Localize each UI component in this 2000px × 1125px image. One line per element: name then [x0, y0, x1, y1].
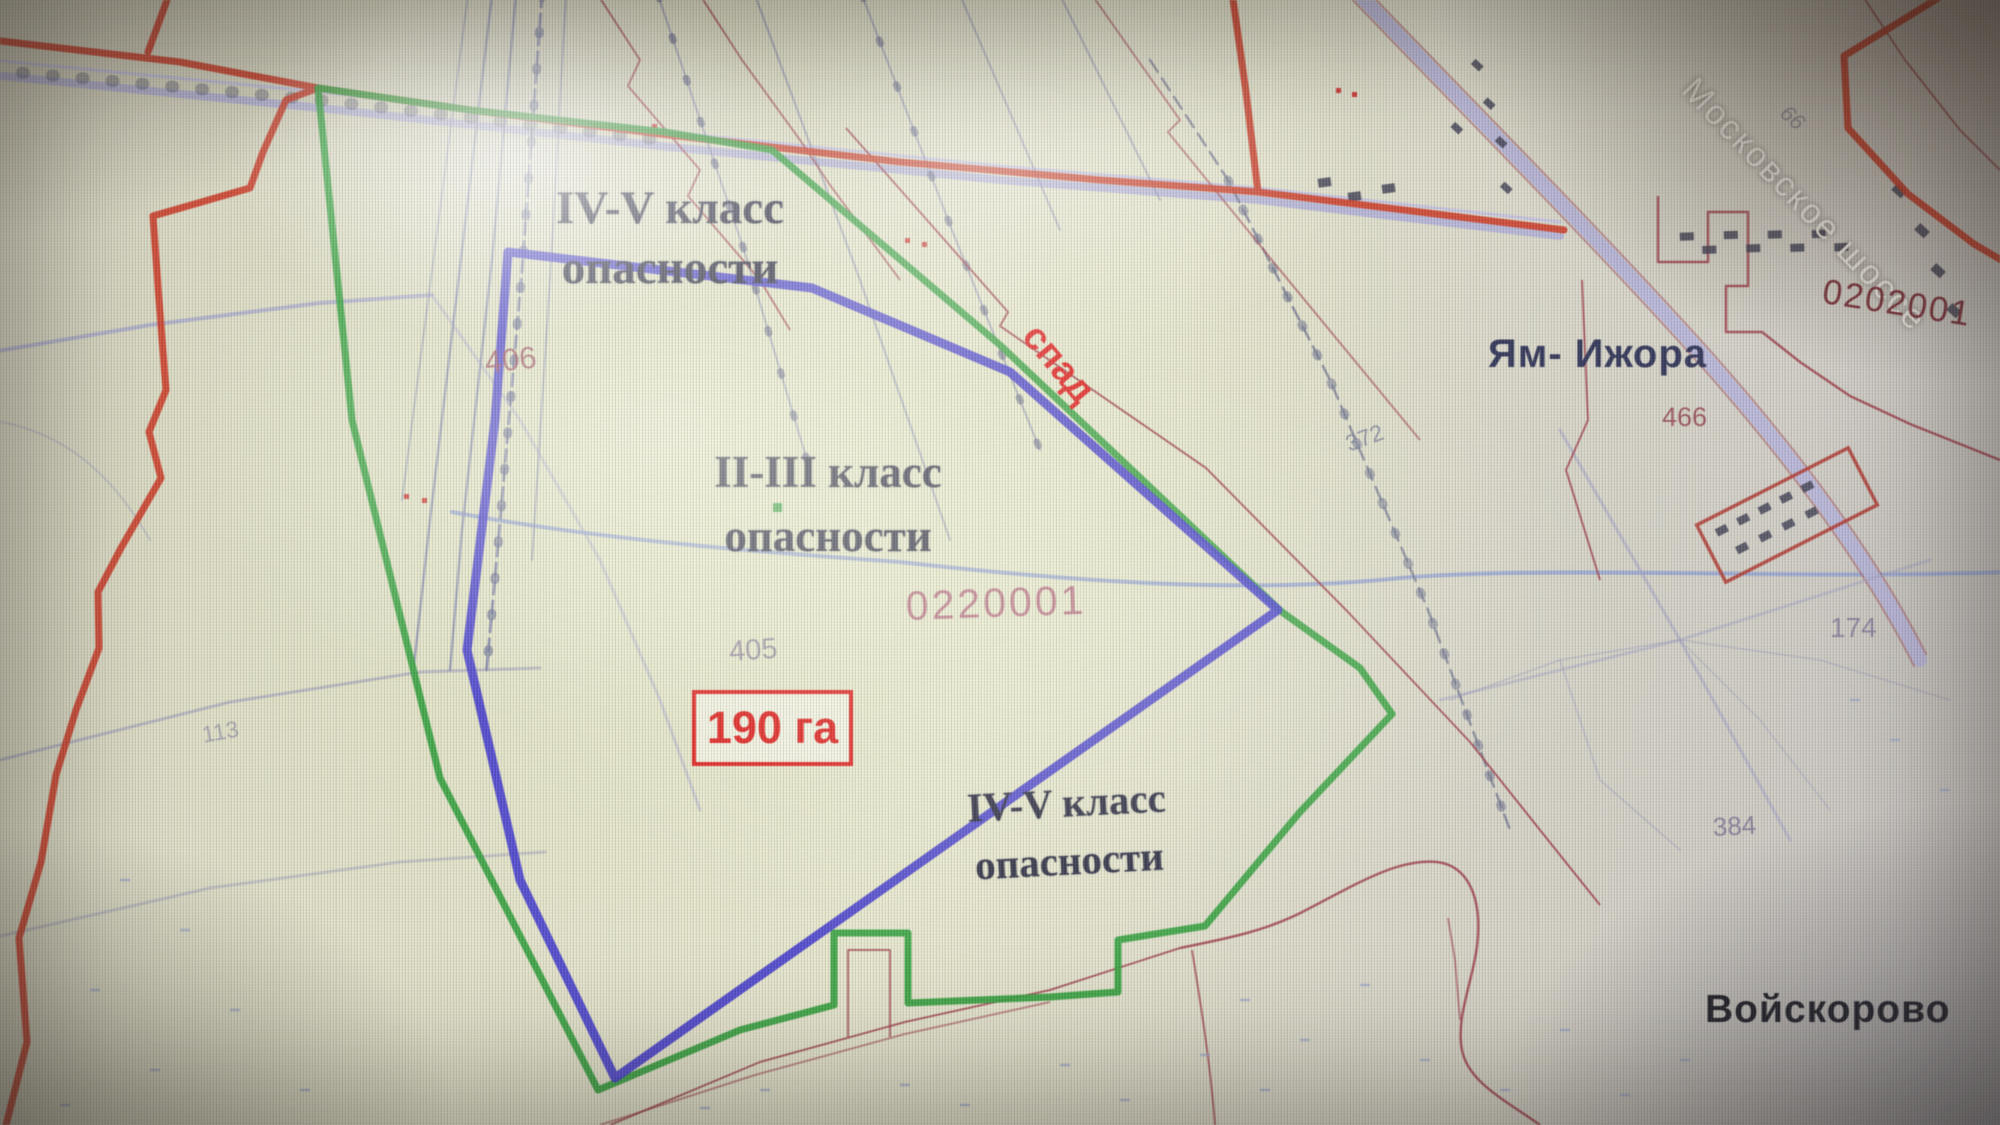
hazard-zone-label-south: IV-V класс опасности: [905, 765, 1231, 898]
area-value: 190 га: [707, 702, 838, 754]
hazard-zone-label-central: II-III класс опасности: [663, 440, 993, 568]
parcel-number-372: 372: [1342, 419, 1387, 457]
cadastral-quarter-number-left: 0220001: [905, 577, 1087, 630]
parcel-number-113: 113: [200, 716, 241, 749]
parcel-number-384: 384: [1712, 810, 1757, 843]
hazard-zone-label-north: IV-V класс опасности: [505, 178, 835, 298]
area-box: 190 га: [692, 690, 853, 766]
parcel-number-405: 405: [728, 633, 779, 669]
settlement-label-yam-izhora: Ям- Ижора: [1488, 332, 1707, 377]
road-km-marker-66: 66: [1775, 100, 1811, 136]
hazard-zone-label-north-line2: опасности: [505, 238, 835, 298]
hazard-zone-label-central-line1: II-III класс: [663, 440, 993, 504]
map-viewport[interactable]: IV-V класс опасности II-III класс опасно…: [0, 0, 2000, 1125]
parcel-number-406: 406: [483, 340, 538, 381]
slope-annotation: спад: [1013, 316, 1103, 412]
map-labels: IV-V класс опасности II-III класс опасно…: [0, 0, 2000, 1125]
settlement-label-voyskorovo: Войскорово: [1705, 988, 1950, 1032]
parcel-number-174: 174: [1830, 612, 1877, 644]
parcel-number-466: 466: [1662, 402, 1707, 433]
hazard-zone-label-central-line2: опасности: [663, 504, 993, 568]
hazard-zone-label-north-line1: IV-V класс: [505, 178, 835, 238]
